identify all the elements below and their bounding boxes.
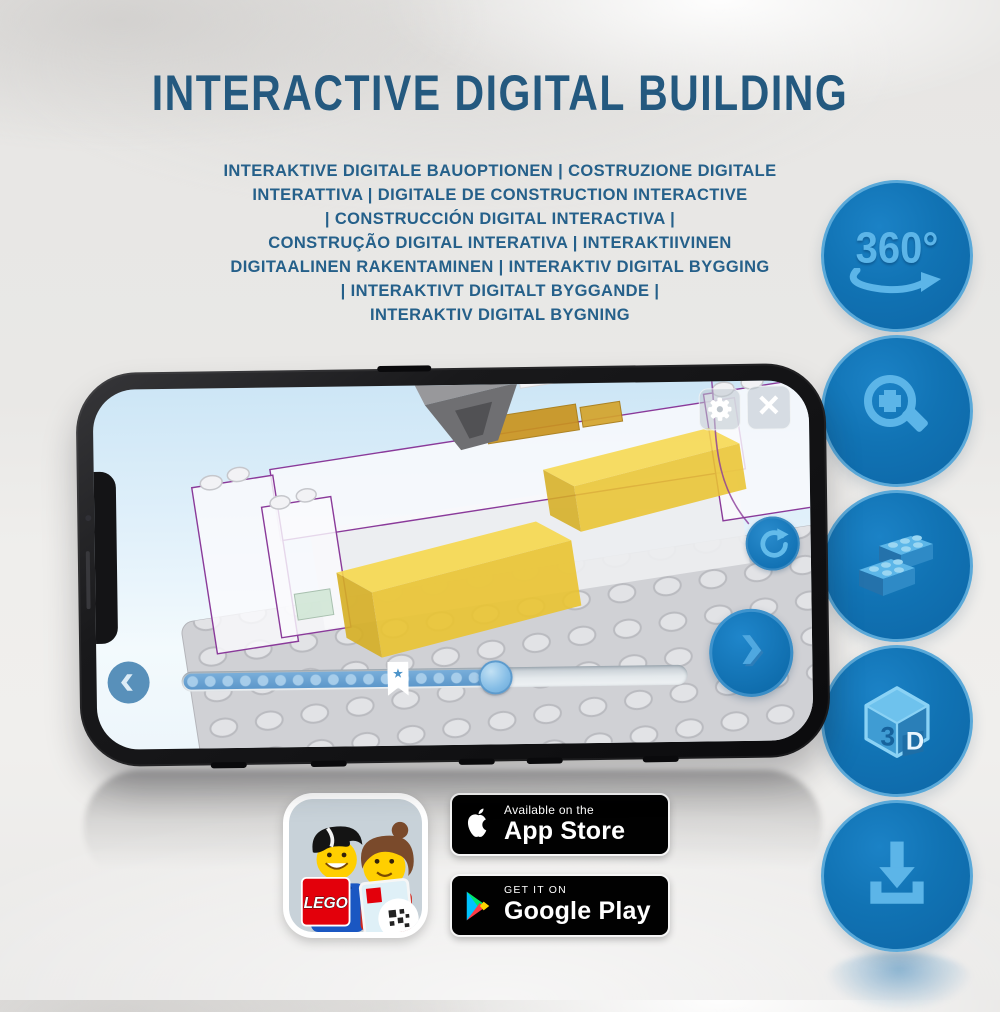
badge-store-name: App Store [504, 817, 625, 846]
earpiece-speaker [86, 551, 91, 609]
feature-zoom-badge [821, 335, 973, 487]
phone-notch [93, 472, 119, 644]
lego-bricks-icon [849, 526, 945, 606]
subtitle-line: INTERATTIVA | DIGITALE DE CONSTRUCTION I… [150, 184, 850, 208]
green-tile [294, 589, 334, 620]
download-icon [857, 837, 937, 915]
subtitle-line: DIGITAALINEN RAKENTAMINEN | INTERAKTIV D… [150, 256, 850, 280]
phone-edge-button [311, 761, 347, 768]
lego-app-icon[interactable]: LEGO [283, 793, 428, 938]
lego-app-artwork: LEGO [289, 799, 422, 932]
feature-download-badge [821, 800, 973, 952]
feature-3d-badge: 3 D [821, 645, 973, 797]
phone-edge-button [527, 757, 563, 764]
subtitle-line: CONSTRUÇÃO DIGITAL INTERATIVA | INTERAKT… [150, 232, 850, 256]
google-play-badge[interactable]: GET IT ON Google Play [450, 874, 670, 937]
lego-3d-model-render [93, 380, 814, 750]
close-icon: × [757, 386, 780, 424]
subtitle-line: INTERAKTIVE DIGITALE BAUOPTIONEN | COSTR… [150, 160, 850, 184]
cube-face-d: D [906, 728, 924, 756]
3d-cube-icon: 3 D [855, 679, 939, 763]
badge-tagline: GET IT ON [504, 885, 651, 897]
gear-icon [706, 395, 734, 423]
cube-face-3: 3 [880, 721, 895, 751]
subtitle-line: | CONSTRUCCIÓN DIGITAL INTERACTIVA | [150, 208, 850, 232]
apple-icon [452, 807, 504, 843]
badge-store-name: Google Play [504, 897, 651, 926]
feature-badge-reflection [824, 952, 974, 1012]
google-play-icon [452, 889, 504, 923]
close-button[interactable]: × [747, 385, 792, 430]
rotate-icon [755, 526, 789, 560]
subtitle-line: | INTERAKTIVT DIGITALT BYGGANDE | [150, 280, 850, 304]
feature-360-badge: 360° [821, 180, 973, 332]
subtitle-line: INTERAKTIV DIGITAL BYGNING [150, 304, 850, 328]
front-camera [85, 515, 91, 521]
zoom-in-icon [854, 368, 940, 454]
multilingual-subtitle: INTERAKTIVE DIGITALE BAUOPTIONEN | COSTR… [150, 160, 850, 327]
rotate-360-icon: 360° [856, 226, 939, 270]
progress-fill [183, 669, 495, 689]
phone-edge-button [211, 762, 247, 769]
page-title: INTERACTIVE DIGITAL BUILDING [0, 65, 1000, 122]
app-store-badge[interactable]: Available on the App Store [450, 793, 670, 856]
lego-logo: LEGO [302, 878, 350, 926]
lego-logo-text: LEGO [304, 895, 348, 912]
phone-edge-button [459, 758, 495, 765]
phone-edge-button [643, 756, 679, 763]
app-screen: × ★ [93, 380, 814, 750]
smartphone: × ★ [75, 363, 830, 767]
chevron-left-icon [117, 671, 139, 693]
feature-bricks-badge [821, 490, 973, 642]
chevron-right-icon [732, 632, 771, 675]
settings-button[interactable] [699, 388, 742, 431]
phone-power-button [377, 365, 431, 372]
badge-tagline: Available on the [504, 804, 625, 817]
